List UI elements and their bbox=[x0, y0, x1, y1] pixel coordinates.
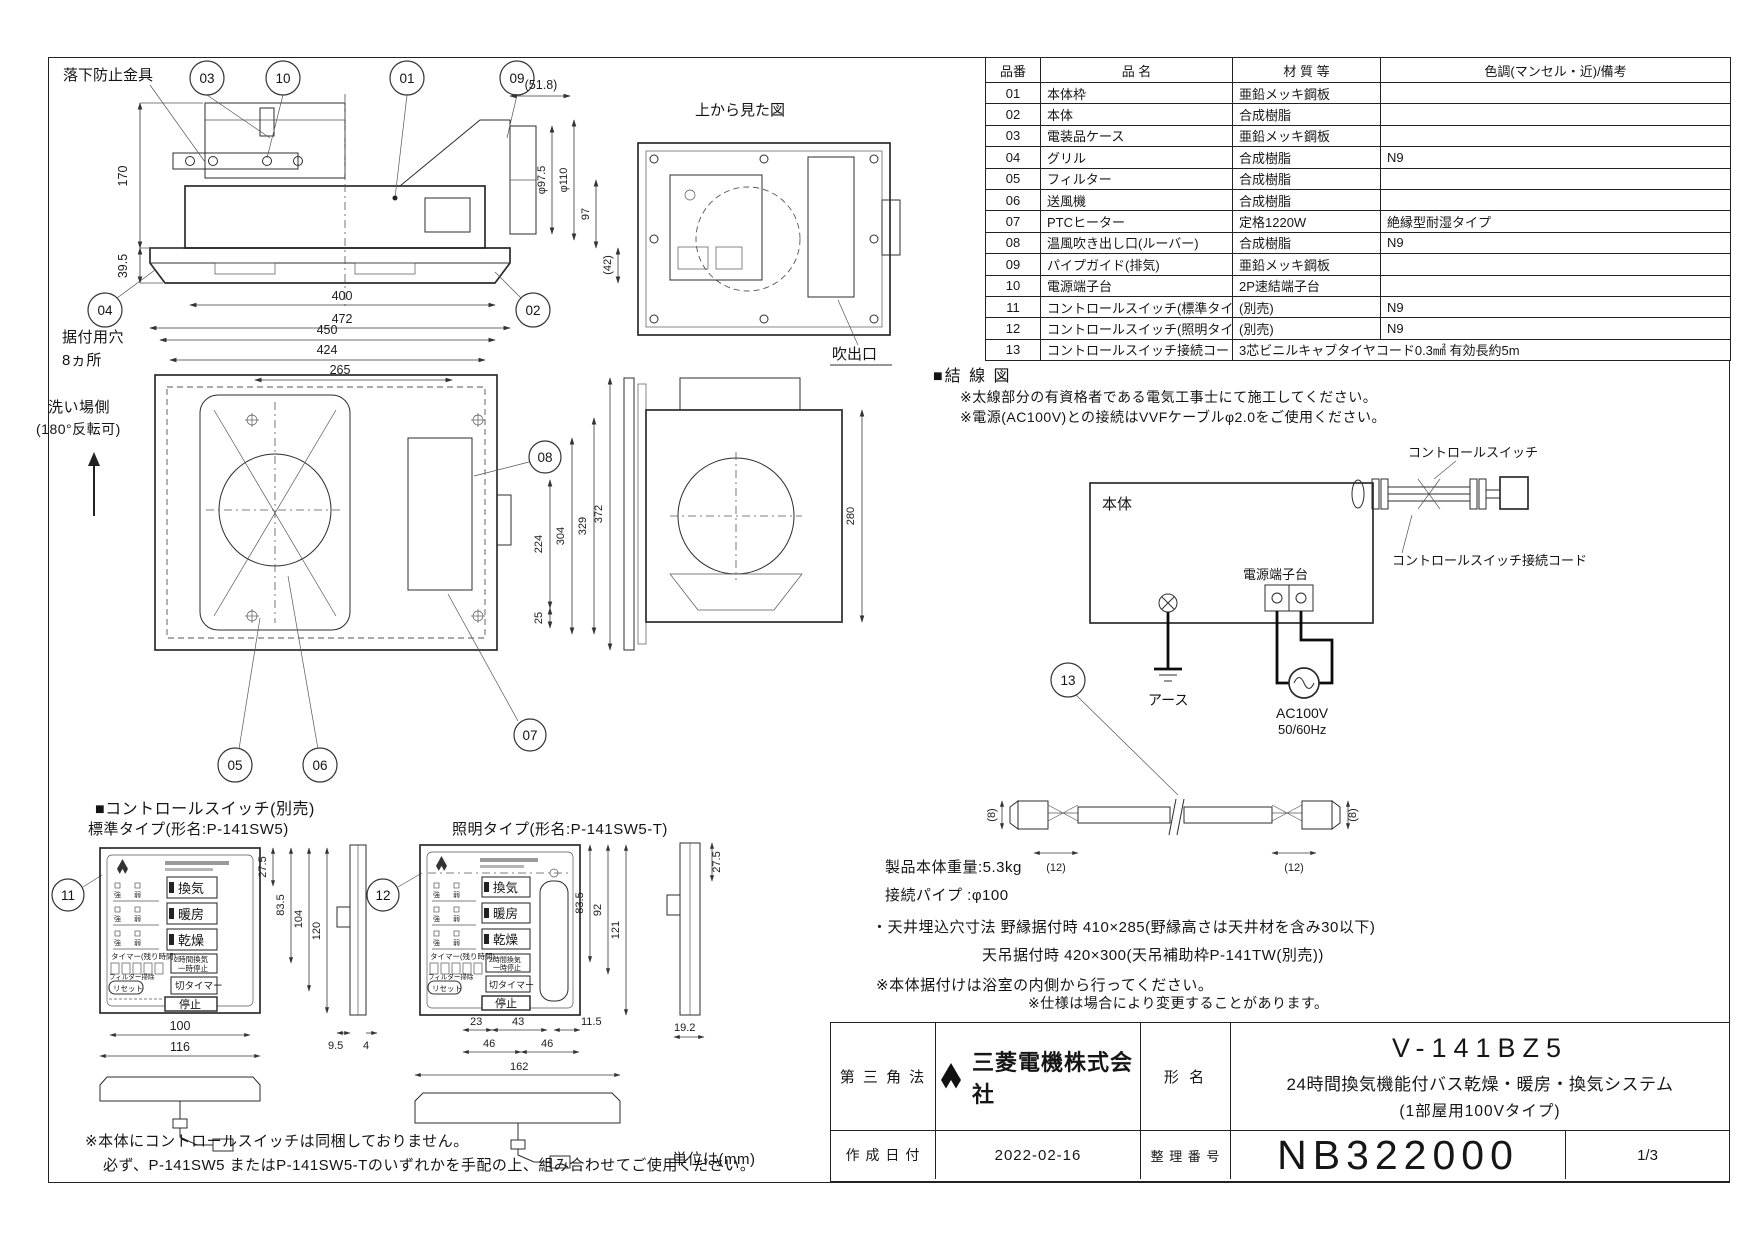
reset-button: リセット bbox=[428, 981, 462, 994]
heating-button-label: 暖房 bbox=[178, 907, 204, 922]
cord-dim-12-left: (12) bbox=[1046, 862, 1066, 874]
callout-11-label: 11 bbox=[61, 888, 75, 903]
table-cell: 03 bbox=[986, 125, 1041, 146]
table-cell: 02 bbox=[986, 104, 1041, 125]
switch-footnote-1: ※本体にコントロールスイッチは同梱しておりません。 bbox=[85, 1130, 469, 1151]
wiring-switch-label: コントロールスイッチ bbox=[1408, 445, 1538, 460]
svg-text:弱: 弱 bbox=[453, 915, 460, 923]
col-header-no: 品番 bbox=[986, 58, 1041, 83]
table-cell: 11 bbox=[986, 296, 1041, 317]
projection-label: 第 三 角 法 bbox=[840, 1066, 927, 1087]
wiring-body-label: 本体 bbox=[1102, 496, 1132, 513]
svg-text:強: 強 bbox=[114, 891, 121, 899]
std-dim-100: 100 bbox=[170, 1019, 191, 1033]
table-row: 10電源端子台2P速結端子台 bbox=[986, 275, 1731, 296]
svg-text:強: 強 bbox=[114, 939, 121, 947]
callout-05: 05 bbox=[218, 618, 260, 782]
table-cell: 本体 bbox=[1041, 104, 1233, 125]
callout-10: 10 bbox=[266, 61, 300, 158]
timer-off-button: 切タイマー bbox=[486, 976, 534, 992]
unit-note: 単位は(mm) bbox=[672, 1148, 755, 1169]
mitsubishi-mini-logo bbox=[436, 856, 447, 871]
table-cell: 2P速結端子台 bbox=[1233, 275, 1381, 296]
document-number: NB322000 bbox=[1277, 1132, 1519, 1179]
table-cell: 電装品ケース bbox=[1041, 125, 1233, 146]
table-row: 07PTCヒーター定格1220W絶縁型耐湿タイプ bbox=[986, 211, 1731, 232]
dim-phi97-5: φ97.5 bbox=[536, 166, 548, 195]
drying-button: 乾燥 bbox=[167, 929, 217, 950]
table-cell bbox=[1381, 254, 1731, 275]
number-label-cell: 整 理 番 号 bbox=[1141, 1131, 1231, 1179]
wiring-section-title: ■結 線 図 bbox=[933, 362, 1012, 386]
std-dim-104: 104 bbox=[293, 910, 305, 928]
dim-372: 372 bbox=[593, 505, 605, 523]
dim-280: 280 bbox=[845, 507, 857, 525]
light-dim-83-5: 83.5 bbox=[574, 892, 586, 913]
cord-dim-12-right: (12) bbox=[1284, 862, 1304, 874]
stop-button: 停止 bbox=[482, 996, 530, 1010]
spec-weight: 製品本体重量:5.3kg bbox=[885, 856, 1022, 877]
table-cell: 09 bbox=[986, 254, 1041, 275]
dim-phi110: φ110 bbox=[558, 168, 570, 193]
dim-224: 224 bbox=[533, 535, 545, 553]
col-header-remark: 色調(マンセル・近)/備考 bbox=[1381, 58, 1731, 83]
company-cell: 三菱電機株式会社 bbox=[936, 1023, 1141, 1130]
page-cell: 1/3 bbox=[1566, 1131, 1729, 1179]
table-cell: 04 bbox=[986, 147, 1041, 168]
callout-01-label: 01 bbox=[399, 71, 414, 86]
mount-hole-count: 8ヵ所 bbox=[62, 349, 102, 370]
dim-51-8: (51.8) bbox=[525, 78, 558, 92]
svg-text:リセット: リセット bbox=[113, 984, 143, 993]
callout-06: 06 bbox=[288, 576, 337, 782]
light-dim-162: 162 bbox=[510, 1061, 528, 1073]
dim-304: 304 bbox=[555, 527, 567, 545]
table-cell: コントロールスイッチ(標準タイプ) bbox=[1041, 296, 1233, 317]
control-switch-assembly bbox=[1352, 477, 1528, 509]
wiring-note-1: ※太線部分の有資格者である電気工事士にて施工してください。 bbox=[960, 387, 1377, 407]
table-cell: N9 bbox=[1381, 296, 1731, 317]
timer-digits bbox=[430, 963, 482, 974]
svg-text:一時停止: 一時停止 bbox=[493, 963, 521, 972]
light-dim-46a: 46 bbox=[483, 1038, 495, 1050]
callout-01: 01 bbox=[390, 61, 424, 201]
callout-07-label: 07 bbox=[522, 728, 537, 743]
heating-button: 暖房 bbox=[482, 903, 530, 923]
std-dim-83-5: 83.5 bbox=[275, 894, 287, 915]
table-cell: 亜鉛メッキ鋼板 bbox=[1233, 125, 1381, 146]
table-cell: 合成樹脂 bbox=[1233, 168, 1381, 189]
switch-standard-drawing: 11 強弱 強弱 強弱 換気 暖房 乾燥 2時間換気 一時停止 タイマー(残り時… bbox=[45, 835, 395, 1165]
table-row: 11コントロールスイッチ(標準タイプ)(別売)N9 bbox=[986, 296, 1731, 317]
light-dim-46b: 46 bbox=[541, 1038, 553, 1050]
table-cell: 亜鉛メッキ鋼板 bbox=[1233, 254, 1381, 275]
wiring-note-2: ※電源(AC100V)との接続はVVFケーブルφ2.0をご使用ください。 bbox=[960, 407, 1386, 427]
table-cell: コントロールスイッチ(照明タイプ) bbox=[1041, 318, 1233, 339]
table-row: 01本体枠亜鉛メッキ鋼板 bbox=[986, 83, 1731, 104]
top-view-title: 上から見た図 bbox=[695, 102, 785, 119]
table-cell: 3芯ビニルキャブタイヤコード0.3㎟ 有効長約5m bbox=[1233, 339, 1731, 360]
callout-13: 13 bbox=[1051, 663, 1178, 795]
date-label: 作 成 日 付 bbox=[846, 1145, 921, 1165]
std-dim-9-5: 9.5 bbox=[328, 1040, 343, 1052]
callout-10-label: 10 bbox=[275, 71, 290, 86]
drying-button: 乾燥 bbox=[482, 929, 530, 949]
table-cell: 合成樹脂 bbox=[1233, 104, 1381, 125]
ventilation-button-label: 換気 bbox=[178, 881, 204, 896]
stop-button: 停止 bbox=[165, 997, 217, 1011]
table-cell: 07 bbox=[986, 211, 1041, 232]
indicator-rows: 強弱 強弱 強弱 bbox=[113, 883, 159, 949]
callout-13-label: 13 bbox=[1060, 673, 1075, 688]
dim-450: 450 bbox=[317, 323, 338, 337]
light-dim-19-2: 19.2 bbox=[674, 1022, 695, 1034]
dim-39-5: 39.5 bbox=[116, 254, 130, 278]
parts-table-header-row: 品番 品 名 材 質 等 色調(マンセル・近)/備考 bbox=[986, 58, 1731, 83]
table-cell: 絶縁型耐湿タイプ bbox=[1381, 211, 1731, 232]
svg-text:2時間換気: 2時間換気 bbox=[174, 954, 209, 964]
drawing-sheet: { "sheet": { "unit_note": "単位は(mm)", "fo… bbox=[0, 0, 1755, 1241]
table-cell: 定格1220W bbox=[1233, 211, 1381, 232]
filter-label: フィルター掃除 bbox=[428, 972, 474, 981]
table-cell bbox=[1381, 125, 1731, 146]
light-dim-11-5: 11.5 bbox=[581, 1016, 602, 1028]
table-row: 12コントロールスイッチ(照明タイプ)(別売)N9 bbox=[986, 318, 1731, 339]
svg-text:弱: 弱 bbox=[453, 939, 460, 947]
svg-text:リセット: リセット bbox=[432, 984, 462, 993]
spec-change-note: ※仕様は場合により変更することがあります。 bbox=[1028, 993, 1329, 1013]
svg-text:停止: 停止 bbox=[495, 996, 517, 1010]
dim-170: 170 bbox=[116, 166, 130, 187]
table-cell bbox=[1381, 83, 1731, 104]
callout-12: 12 bbox=[367, 873, 422, 911]
col-header-name: 品 名 bbox=[1041, 58, 1233, 83]
svg-text:弱: 弱 bbox=[134, 939, 141, 947]
svg-text:強: 強 bbox=[433, 891, 440, 899]
svg-text:強: 強 bbox=[433, 939, 440, 947]
table-row: 13コントロールスイッチ接続コード3芯ビニルキャブタイヤコード0.3㎟ 有効長約… bbox=[986, 339, 1731, 360]
callout-04-label: 04 bbox=[97, 303, 113, 318]
wash-side-note: (180°反転可) bbox=[36, 419, 121, 439]
mitsubishi-mini-logo bbox=[117, 859, 128, 874]
drying-button-label: 乾燥 bbox=[178, 933, 204, 948]
switch-footnote-2: 必ず、P-141SW5 またはP-141SW5-Tのいずれかを手配の上、組み合わ… bbox=[103, 1154, 755, 1175]
callout-12-label: 12 bbox=[375, 888, 390, 903]
table-cell bbox=[1381, 189, 1731, 210]
table-cell: フィルター bbox=[1041, 168, 1233, 189]
timer-row-label: タイマー(残り時間) bbox=[430, 951, 495, 961]
svg-text:強: 強 bbox=[433, 915, 440, 923]
page-number: 1/3 bbox=[1637, 1147, 1658, 1164]
svg-text:切タイマー: 切タイマー bbox=[175, 981, 223, 992]
number-label: 整 理 番 号 bbox=[1151, 1146, 1221, 1165]
table-row: 08温風吹き出し口(ルーバー)合成樹脂N9 bbox=[986, 232, 1731, 253]
front-view-drawing: 450 424 265 08 224 25 304 329 372 280 bbox=[140, 318, 900, 783]
callout-09-label: 09 bbox=[509, 71, 524, 86]
number-cell: NB322000 bbox=[1231, 1131, 1566, 1179]
table-cell: 01 bbox=[986, 83, 1041, 104]
table-cell: 本体枠 bbox=[1041, 83, 1233, 104]
table-row: 06送風機合成樹脂 bbox=[986, 189, 1731, 210]
cord-dim-8-right: (8) bbox=[1347, 808, 1359, 821]
table-cell: 10 bbox=[986, 275, 1041, 296]
table-cell: 05 bbox=[986, 168, 1041, 189]
timer-row-label: タイマー(残り時間) bbox=[111, 951, 176, 961]
svg-text:一時停止: 一時停止 bbox=[178, 963, 208, 973]
std-dim-27-5: 27.5 bbox=[257, 856, 269, 877]
dim-97: 97 bbox=[580, 208, 592, 220]
svg-text:弱: 弱 bbox=[134, 915, 141, 923]
table-cell: N9 bbox=[1381, 232, 1731, 253]
model-label-cell: 形 名 bbox=[1141, 1023, 1231, 1130]
title-block: 第 三 角 法 三菱電機株式会社 形 名 V-141BZ5 24時間換気機能付バ… bbox=[830, 1022, 1730, 1182]
light-dim-92: 92 bbox=[592, 904, 604, 916]
timer-digits bbox=[111, 963, 163, 974]
dim-329: 329 bbox=[577, 517, 589, 535]
light-dim-23: 23 bbox=[470, 1016, 482, 1028]
callout-03-label: 03 bbox=[199, 71, 214, 86]
spec-pipe: 接続パイプ :φ100 bbox=[885, 884, 1009, 905]
dim-42: (42) bbox=[602, 255, 614, 275]
model-description: 24時間換気機能付バス乾燥・暖房・換気システム bbox=[1287, 1070, 1674, 1095]
table-cell: N9 bbox=[1381, 147, 1731, 168]
dim-400: 400 bbox=[332, 289, 353, 303]
table-cell: 13 bbox=[986, 339, 1041, 360]
spec-hole-2: 天吊据付時 420×300(天吊補助枠P-141TW(別売)) bbox=[982, 944, 1324, 965]
pause-button: 2時間換気 一時停止 bbox=[171, 954, 217, 973]
svg-text:弱: 弱 bbox=[453, 891, 460, 899]
date-cell: 2022-02-16 bbox=[936, 1131, 1141, 1179]
svg-text:弱: 弱 bbox=[134, 891, 141, 899]
table-cell: 温風吹き出し口(ルーバー) bbox=[1041, 232, 1233, 253]
mounting-holes bbox=[245, 413, 485, 623]
cord-drawing: 13 (8) (12) (12) (8) bbox=[990, 655, 1410, 880]
table-cell: 合成樹脂 bbox=[1233, 232, 1381, 253]
heating-button: 暖房 bbox=[167, 903, 217, 924]
wiring-cord-label: コントロールスイッチ接続コード bbox=[1392, 553, 1587, 568]
ventilation-button-label: 換気 bbox=[493, 880, 518, 895]
filter-label: フィルター掃除 bbox=[109, 972, 155, 981]
dim-25: 25 bbox=[533, 612, 545, 624]
callout-08: 08 bbox=[474, 441, 561, 476]
mitsubishi-logo bbox=[936, 1062, 966, 1092]
ventilation-button: 換気 bbox=[167, 877, 217, 898]
heating-button-label: 暖房 bbox=[493, 906, 518, 921]
parts-table: 品番 品 名 材 質 等 色調(マンセル・近)/備考 01本体枠亜鉛メッキ鋼板0… bbox=[985, 57, 1731, 361]
std-dim-116: 116 bbox=[170, 1040, 190, 1054]
light-dim-27-5: 27.5 bbox=[711, 851, 723, 872]
table-cell: グリル bbox=[1041, 147, 1233, 168]
table-cell bbox=[1381, 275, 1731, 296]
callout-03: 03 bbox=[190, 61, 270, 138]
table-cell: 合成樹脂 bbox=[1233, 147, 1381, 168]
table-row: 05フィルター合成樹脂 bbox=[986, 168, 1731, 189]
model-type: (1部屋用100Vタイプ) bbox=[1399, 1099, 1560, 1121]
callout-05-label: 05 bbox=[227, 758, 242, 773]
callout-11: 11 bbox=[52, 875, 102, 911]
fall-prevention-label: 落下防止金具 bbox=[63, 67, 153, 84]
model-label: 形 名 bbox=[1164, 1066, 1207, 1087]
table-cell: (別売) bbox=[1233, 296, 1381, 317]
indicator-rows: 強弱 強弱 強弱 bbox=[432, 883, 476, 949]
dim-424: 424 bbox=[317, 343, 338, 357]
spec-hole-1: ・天井埋込穴寸法 野縁据付時 410×285(野縁高さは天井材を含み30以下) bbox=[872, 916, 1375, 937]
table-cell: 12 bbox=[986, 318, 1041, 339]
mount-hole-label: 据付用穴 bbox=[62, 326, 124, 347]
table-cell: コントロールスイッチ接続コード bbox=[1041, 339, 1233, 360]
table-row: 02本体合成樹脂 bbox=[986, 104, 1731, 125]
parts-table-body: 01本体枠亜鉛メッキ鋼板02本体合成樹脂03電装品ケース亜鉛メッキ鋼板04グリル… bbox=[986, 83, 1731, 361]
model-cell: V-141BZ5 24時間換気機能付バス乾燥・暖房・換気システム (1部屋用10… bbox=[1231, 1023, 1729, 1130]
cord-dim-8-left: (8) bbox=[986, 808, 998, 821]
table-cell: 送風機 bbox=[1041, 189, 1233, 210]
timer-off-button: 切タイマー bbox=[171, 977, 223, 994]
table-cell: (別売) bbox=[1233, 318, 1381, 339]
company-name: 三菱電機株式会社 bbox=[972, 1045, 1140, 1109]
drying-button-label: 乾燥 bbox=[493, 933, 519, 947]
table-cell: 亜鉛メッキ鋼板 bbox=[1233, 83, 1381, 104]
svg-text:強: 強 bbox=[114, 915, 121, 923]
table-cell: 06 bbox=[986, 189, 1041, 210]
date-label-cell: 作 成 日 付 bbox=[831, 1131, 936, 1179]
switch-section-title: ■コントロールスイッチ(別売) bbox=[95, 795, 315, 819]
model-number: V-141BZ5 bbox=[1392, 1033, 1568, 1064]
switch-lighting-drawing: 12 強弱 強弱 強弱 換気 暖房 乾燥 2時間換気 一時停止 タイマー(残り時… bbox=[368, 835, 838, 1165]
spec-install-note: ※本体据付けは浴室の内側から行ってください。 bbox=[876, 974, 1213, 995]
table-row: 04グリル合成樹脂N9 bbox=[986, 147, 1731, 168]
light-dim-43: 43 bbox=[512, 1016, 524, 1028]
table-cell: 08 bbox=[986, 232, 1041, 253]
table-row: 03電装品ケース亜鉛メッキ鋼板 bbox=[986, 125, 1731, 146]
table-cell: 合成樹脂 bbox=[1233, 189, 1381, 210]
table-cell: PTCヒーター bbox=[1041, 211, 1233, 232]
table-row: 09パイプガイド(排気)亜鉛メッキ鋼板 bbox=[986, 254, 1731, 275]
table-cell bbox=[1381, 104, 1731, 125]
callout-06-label: 06 bbox=[312, 758, 327, 773]
svg-text:停止: 停止 bbox=[179, 997, 201, 1011]
light-dim-121: 121 bbox=[610, 921, 622, 939]
table-cell: 電源端子台 bbox=[1041, 275, 1233, 296]
table-cell: パイプガイド(排気) bbox=[1041, 254, 1233, 275]
wiring-terminal-label: 電源端子台 bbox=[1243, 567, 1308, 582]
creation-date: 2022-02-16 bbox=[995, 1147, 1082, 1164]
callout-08-label: 08 bbox=[537, 450, 552, 465]
callout-02-label: 02 bbox=[525, 303, 540, 318]
projection-cell: 第 三 角 法 bbox=[831, 1023, 936, 1130]
table-cell bbox=[1381, 168, 1731, 189]
col-header-material: 材 質 等 bbox=[1233, 58, 1381, 83]
reset-button: リセット bbox=[109, 981, 143, 994]
wash-side-label: 洗い場側 bbox=[48, 396, 110, 417]
std-dim-120: 120 bbox=[311, 922, 323, 940]
ventilation-button: 換気 bbox=[482, 877, 530, 897]
table-cell: N9 bbox=[1381, 318, 1731, 339]
svg-text:切タイマー: 切タイマー bbox=[489, 980, 534, 990]
